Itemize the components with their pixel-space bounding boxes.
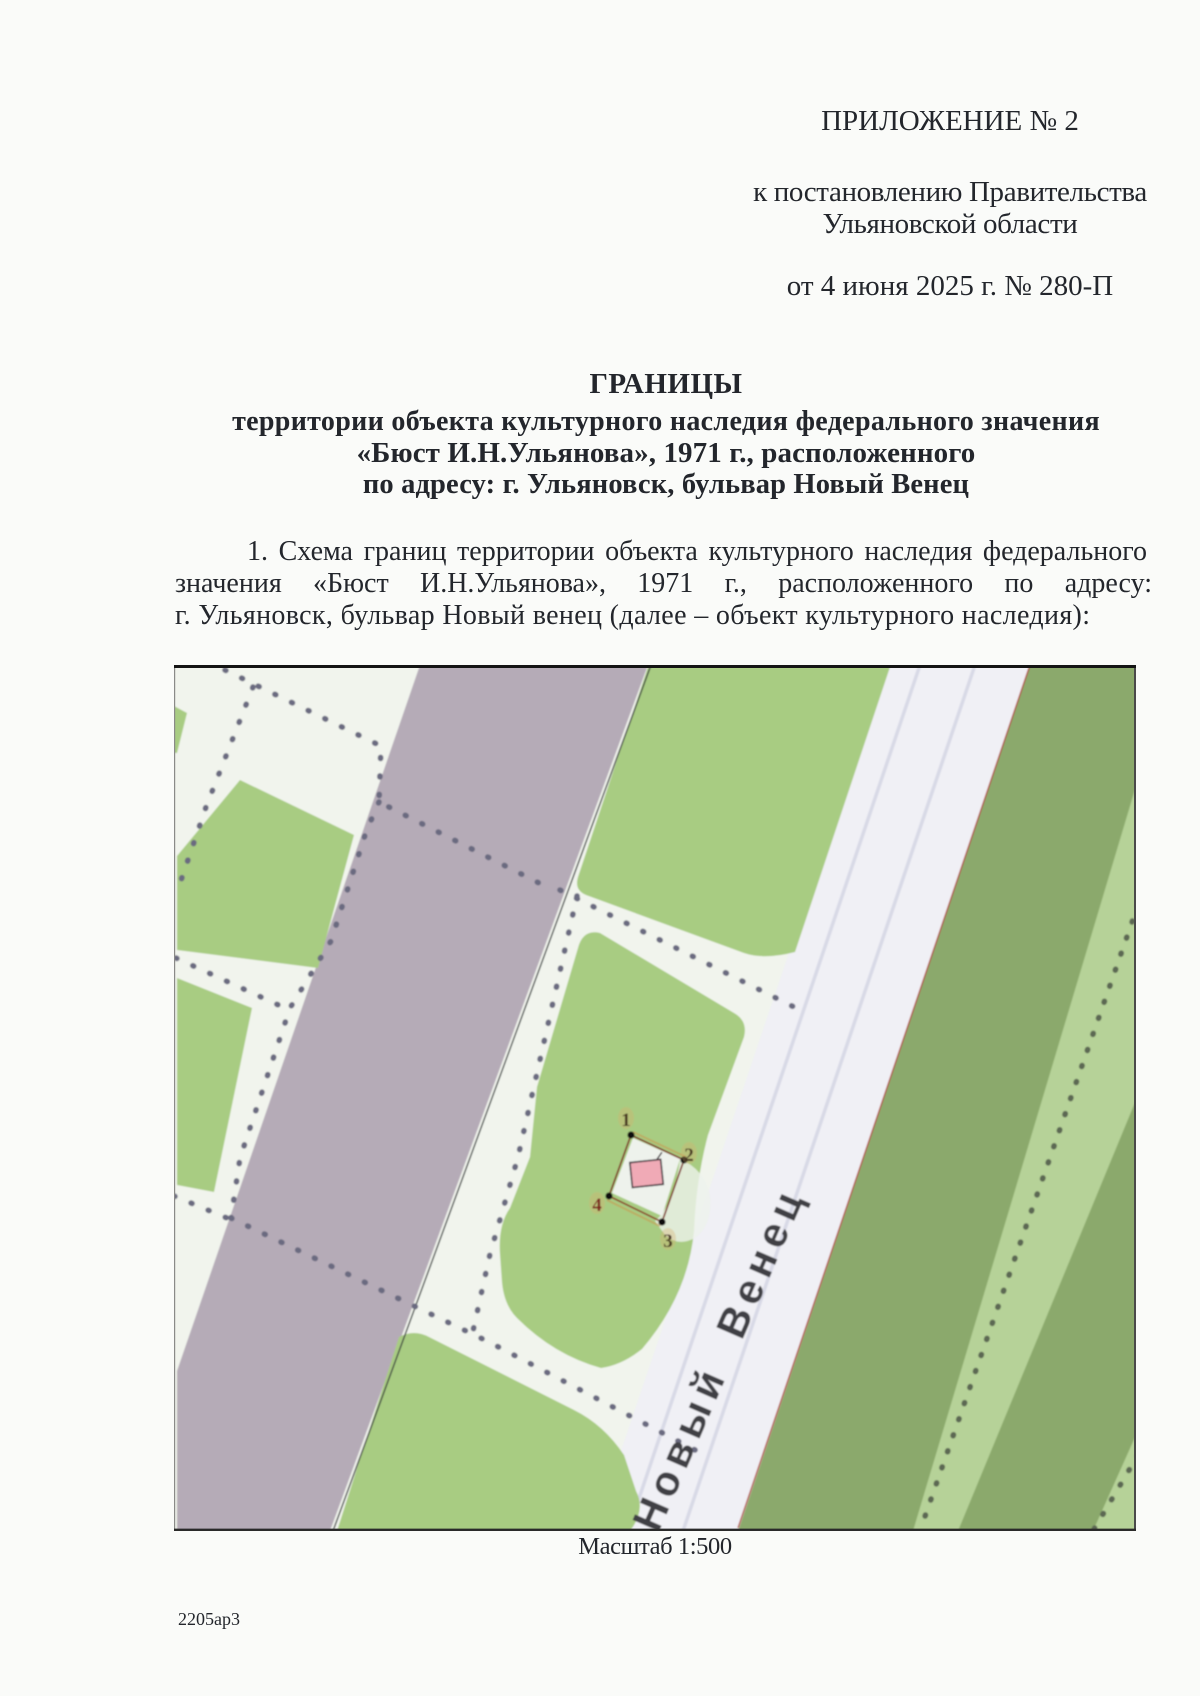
svg-text:4: 4: [592, 1195, 602, 1216]
svg-text:1: 1: [621, 1110, 631, 1131]
svg-text:2: 2: [684, 1145, 694, 1166]
svg-text:3: 3: [663, 1231, 673, 1252]
